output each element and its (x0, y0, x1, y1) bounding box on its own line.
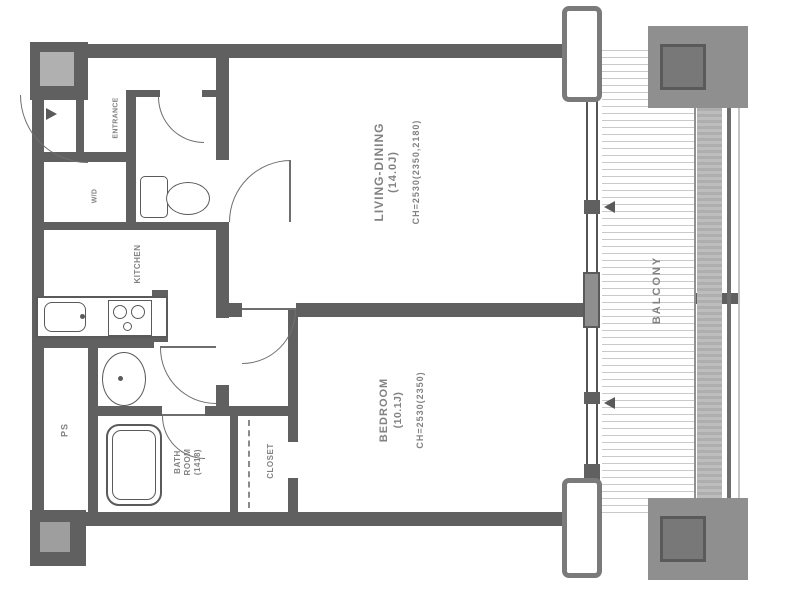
room-label-living-dining: LIVING-DINING (14.0J) CH=2530(2350,2180) (372, 120, 422, 225)
stove (108, 300, 152, 336)
pillar-bottom-right (648, 498, 748, 580)
bedroom-name: BEDROOM (378, 371, 392, 448)
wall-toilet-top-left (126, 90, 160, 97)
wall-hall-ld-upper (216, 58, 229, 160)
pillar-top-right (648, 26, 748, 108)
pillar-top-left (30, 42, 88, 100)
living-dining-name: LIVING-DINING (372, 120, 387, 225)
wall-bedroom-left-lower (288, 478, 298, 512)
bedroom-size: (10.1J) (392, 371, 405, 448)
room-label-bedroom: BEDROOM (10.1J) CH=2530(2350) (378, 371, 426, 448)
wall-top (32, 44, 570, 58)
wall-bottom (32, 512, 600, 526)
washroom-door-leaf (160, 346, 216, 348)
room-label-ps: PS (59, 423, 70, 437)
window-bedroom-2 (586, 404, 598, 464)
living-dining-ceiling: CH=2530(2350,2180) (411, 120, 422, 225)
bathtub-inner (112, 430, 156, 500)
entry-arrow-icon (46, 108, 57, 120)
toilet-bowl (166, 182, 210, 215)
entry-door-arc (20, 95, 88, 163)
balcony-divider-top (562, 6, 602, 102)
balcony-edge-line (738, 108, 740, 498)
washbasin (102, 352, 146, 406)
room-label-wd: W/D (92, 189, 101, 204)
wall-toilet-left (126, 90, 136, 230)
wall-divider-left-stub (216, 303, 242, 317)
room-label-kitchen: KITCHEN (133, 244, 143, 283)
wall-closet-left (230, 406, 238, 512)
wall-bath-top-left (88, 406, 162, 416)
balcony-railing-inner-line (694, 108, 696, 498)
living-door-arc (229, 160, 291, 222)
bedroom-door-leaf (242, 308, 296, 310)
opening-arrow-icon (604, 397, 615, 409)
bathroom-name-1: BATH (173, 449, 183, 476)
pillar-core (40, 52, 74, 86)
pillar-core (660, 516, 706, 562)
wall-bath-closet-top (205, 406, 298, 416)
window-bedroom-1 (586, 328, 598, 392)
window-living-2 (586, 214, 598, 272)
washbasin-drain-dot (118, 376, 123, 381)
room-label-entrance: ENTRANCE (113, 97, 122, 138)
balcony-floor (602, 50, 696, 516)
window-center-block (583, 272, 600, 328)
opening-arrow-icon (604, 201, 615, 213)
pillar-bottom-left (30, 510, 86, 566)
stove-burner (113, 305, 127, 319)
bedroom-ceiling: CH=2530(2350) (415, 371, 426, 448)
ps-name: PS (59, 423, 70, 437)
closet-hanger-line (248, 420, 250, 508)
living-door-leaf (289, 160, 291, 222)
room-label-balcony: BALCONY (651, 256, 665, 324)
stove-burner (131, 305, 145, 319)
room-label-closet: CLOSET (266, 443, 276, 478)
wall-ld-bedroom-divider (296, 303, 600, 317)
pillar-core (40, 522, 70, 552)
washroom-door-arc (160, 348, 216, 404)
sink-faucet-dot (80, 314, 85, 319)
window-stub-2 (584, 392, 600, 404)
living-dining-size: (14.0J) (387, 120, 401, 225)
balcony-railing (697, 108, 722, 498)
toilet-tank (140, 176, 168, 218)
bathroom-door-leaf (162, 414, 205, 416)
floor-plan: LIVING-DINING (14.0J) CH=2530(2350,2180)… (0, 0, 787, 600)
room-label-bathroom: BATH ROOM (1418) (173, 449, 203, 476)
toilet-door-arc (158, 97, 204, 143)
pillar-core (660, 44, 706, 90)
wall-toilet-top-right (202, 90, 216, 97)
wd-name: W/D (92, 189, 101, 204)
bathroom-name-2: ROOM (183, 449, 193, 476)
bathroom-size: (1418) (193, 449, 203, 476)
kitchen-name: KITCHEN (133, 244, 143, 283)
wall-ps-right (88, 345, 98, 520)
entrance-name: ENTRANCE (113, 97, 122, 138)
closet-name: CLOSET (266, 443, 276, 478)
window-stub-1 (584, 200, 600, 214)
stove-burner-small (123, 322, 132, 331)
balcony-name: BALCONY (651, 256, 665, 324)
balcony-railing-outer-line (727, 108, 731, 498)
balcony-divider-bottom (562, 478, 602, 578)
